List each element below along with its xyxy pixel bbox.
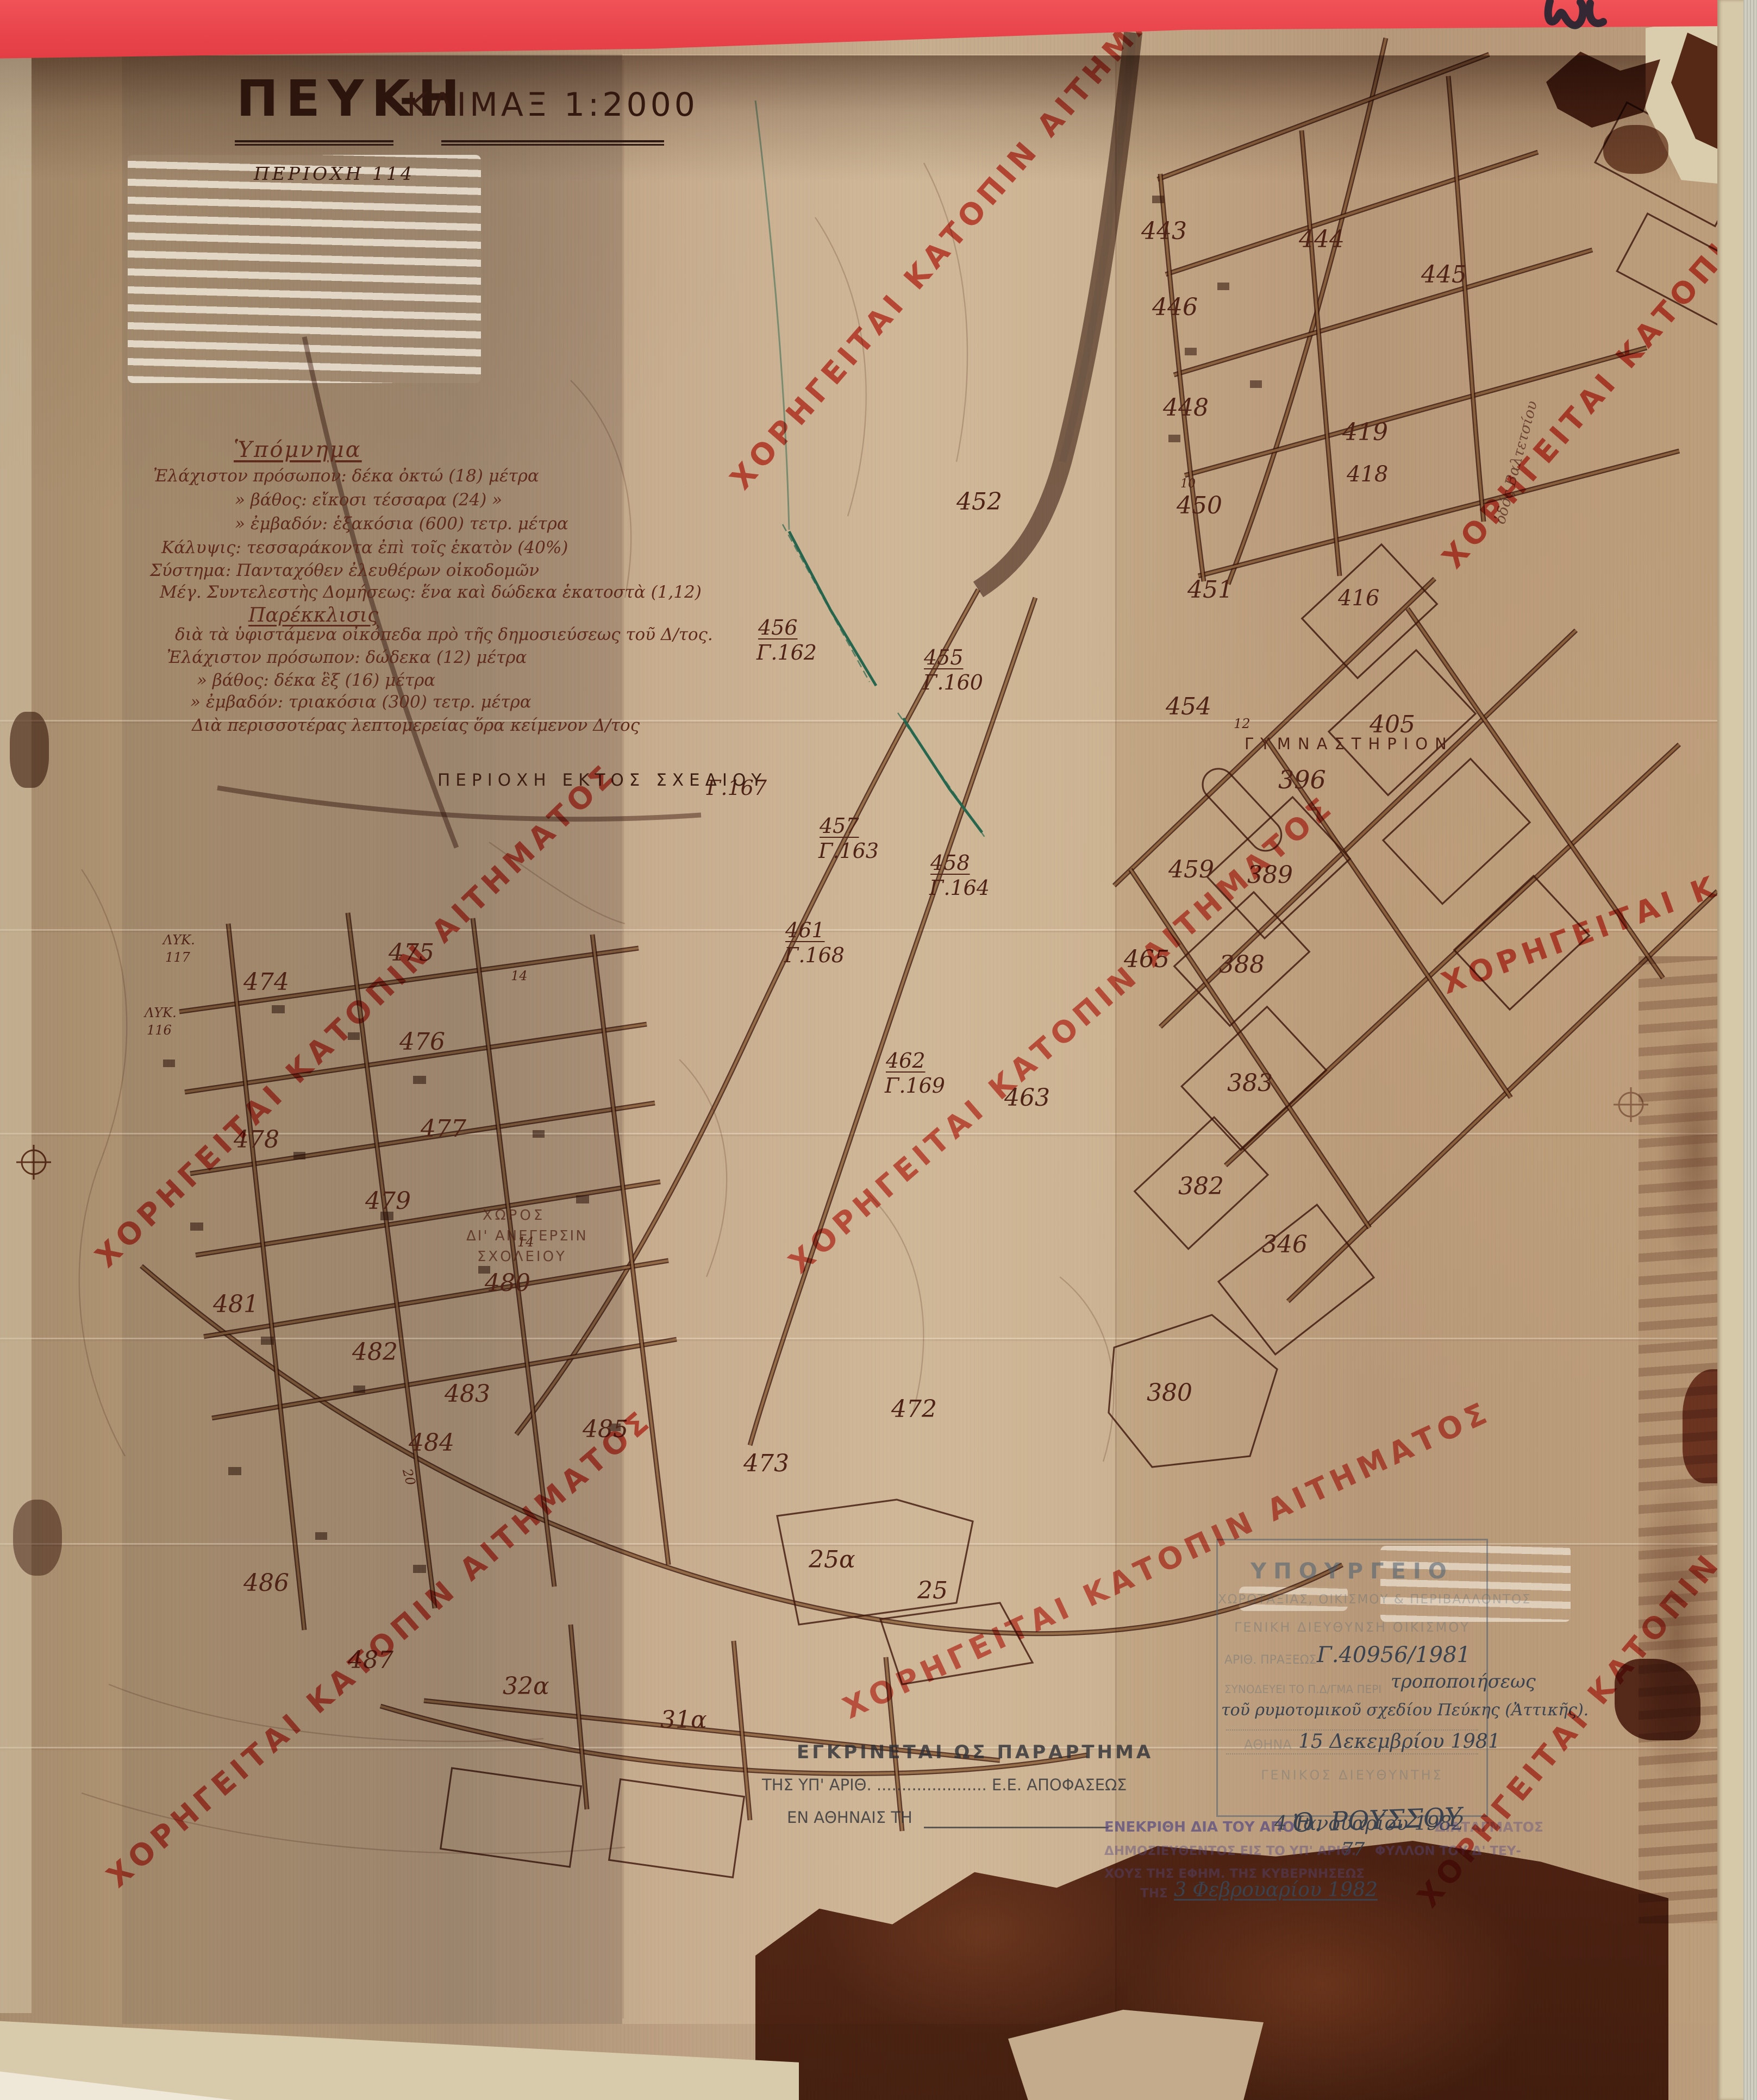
block-label: Γ.164 [929,876,990,900]
block-label: 459 [1168,856,1214,883]
gazette-row4-print: ΤΗΣ [1140,1886,1168,1901]
stamp-subject-2: τοῦ ρυμοτομικοῦ σχεδίου Πεύκης (Ἀττικῆς)… [1221,1701,1589,1720]
legend-line: Διὰ περισσοτέρας λεπτομερείας ὅρα κείμεν… [192,716,640,735]
block-label: Γ.163 [818,839,879,863]
legend-line: Παρέκκλισις [248,604,378,626]
block-label: 14 [517,1234,534,1250]
block-label: 457 [820,814,859,838]
edge-tear [10,712,49,788]
block-label: 482 [352,1338,398,1366]
block-label: 455 [924,645,964,669]
block-label: 116 [147,1023,172,1038]
block-label: ΣΧΟΛΕΙΟΥ [477,1249,567,1265]
legend-line: » ἐμβαδόν: ἑξακόσια (600) τετρ. μέτρα [235,514,568,534]
area-number: ΠΕΡΙΟΧΗ 114 [254,163,415,184]
block-label: 446 [1152,293,1198,321]
block-label: Γ.160 [923,670,983,694]
block-label: 476 [399,1028,445,1056]
block-label: 461 [785,918,825,942]
title-underline [235,140,393,146]
block-label: 416 [1338,586,1379,611]
block-label: ΛΥΚ. [145,1005,177,1020]
block-label: 25 [917,1577,948,1604]
block-label: 480 [485,1269,530,1297]
scanned-cadastral-map-sheet: 4434444454464484194184164504514524544054… [0,0,1757,2100]
block-label: 452 [956,488,1002,516]
block-label: 12 [1234,716,1250,731]
block-label: 443 [1141,217,1187,245]
block-label: 451 [1187,576,1233,604]
block-label: 32α [503,1672,549,1700]
stamp-ministry-line3: ΓΕΝΙΚΗ ΔΙΕΥΘΥΝΣΗ ΟΙΚΙΣΜΟΥ [1218,1620,1486,1635]
block-label: 14 [511,968,528,983]
block-label: Γ.169 [885,1074,945,1098]
block-label: 462 [886,1049,926,1073]
stamp-praxis-label: ΑΡΙΘ. ΠΡΑΞΕΩΣ [1224,1653,1316,1667]
edge-tear [13,1500,62,1576]
block-label: 380 [1147,1379,1192,1407]
legend-line: Ἐλάχιστον πρόσωπον: δέκα ὀκτώ (18) μέτρα [153,466,539,486]
block-label: 456 [758,616,798,640]
block-label: 484 [409,1429,454,1457]
legend-line: » ἐμβαδόν: τριακόσια (300) τετρ. μέτρα [190,692,532,712]
block-label: 454 [1166,693,1211,720]
block-label: 481 [213,1290,259,1318]
scale-underline [441,140,664,146]
block-label: 383 [1227,1069,1273,1097]
sheet-scale: ΚΛΙΜΑΞ 1:2000 [407,86,698,124]
block-label: 346 [1262,1231,1308,1258]
gazette-row2-ink: 77 [1341,1839,1365,1860]
block-label: Γ.168 [784,943,845,967]
block-label: 117 [165,950,190,965]
stamp-date: 15 Δεκεμβρίου 1981 [1298,1731,1500,1753]
legend-heading: Ὑπόμνημα [234,437,362,462]
legend-line: διὰ τὰ ὑφιστάμενα οἰκόπεδα πρὸ τῆς δημοσ… [175,625,713,644]
block-label: 25α [809,1546,855,1574]
gazette-row1-print: ΕΝΕΚΡΙΘΗ ΔΙΑ ΤΟΥ ΑΠΟ [1104,1819,1295,1835]
block-label: 382 [1178,1173,1224,1200]
stamp-ministry-title: ΥΠΟΥΡΓΕΙΟ [1218,1559,1486,1584]
legend-line: Ἐλάχιστον πρόσωπον: δώδεκα (12) μέτρα [167,648,527,667]
block-label: 474 [243,968,289,996]
approval-date-line [924,1827,1109,1828]
legend-line: » βάθος: εἴκοσι τέσσαρα (24) » [235,490,502,510]
block-label: 473 [743,1450,789,1477]
legend-line: Κάλυψις: τεσσαράκοντα ἐπὶ τοῖς ἑκατὸν (4… [161,538,568,557]
block-label: 31α [660,1706,707,1734]
block-label: 444 [1299,225,1345,253]
block-label: 388 [1219,951,1265,979]
block-label: 418 [1347,462,1388,487]
block-label: 479 [365,1187,411,1215]
stamp-ministry-line2: ΧΩΡΟΤΑΞΙΑΣ, ΟΙΚΙΣΜΟΥ & ΠΕΡΙΒΑΛΛΟΝΤΟΣ [1218,1593,1486,1607]
stamp-subject-1: τροποποιήσεως [1391,1671,1536,1692]
block-label: 445 [1421,261,1467,289]
ministry-stamp: ΥΠΟΥΡΓΕΙΟ ΧΩΡΟΤΑΞΙΑΣ, ΟΙΚΙΣΜΟΥ & ΠΕΡΙΒΑΛ… [1216,1539,1488,1817]
stamp-director-label: ΓΕΝΙΚΟΣ ΔΙΕΥΘΥΝΤΗΣ [1218,1767,1486,1783]
block-label: 477 [421,1115,466,1143]
approval-line3: ΕΝ ΑΘΗΝΑΙΣ ΤΗ [787,1808,912,1827]
torn-dark-piece [1603,125,1668,174]
handwritten-mark-icon [0,0,1757,65]
block-label: 419 [1342,418,1388,446]
stamp-accompanies-label: ΣΥΝΟΔΕΥΕΙ ΤΟ Π.Δ/ΓΜΑ ΠΕΡΙ [1224,1683,1381,1696]
stamp-rule [1226,1753,1478,1754]
gazette-row4-ink: 3 Φεβρουαρίου 1982 [1174,1879,1378,1901]
block-label: 450 [1177,492,1222,519]
gazette-row2-print: ΔΗΜΟΣΙΕΥΘΕΝΤΟΣ ΕΙΣ ΤΟ ΥΠ' ΑΡΙΘ. [1104,1844,1356,1858]
block-label: ΛΥΚ. [163,932,195,948]
block-label: 10 [1180,477,1196,491]
stamp-city-label: ΑΘΗΝΑ [1244,1737,1292,1752]
block-label: 472 [891,1395,937,1423]
legend-line: » βάθος: δέκα ἓξ (16) μέτρα [197,670,435,690]
block-label: ΓΥΜΝΑΣΤΗΡΙΟΝ [1245,735,1454,753]
block-label: 483 [445,1380,490,1408]
block-label: 448 [1163,394,1209,422]
approval-line2: ΤΗΣ ΥΠ' ΑΡΙΘ. ...................... Ε.Ε… [762,1776,1127,1794]
legend-line: Σύστημα: Πανταχόθεν ἐλευθέρων οἰκοδομῶν [150,561,539,580]
backing-strip-right [1717,0,1745,2100]
terrain-contours [79,163,1114,1853]
legend-line: Μέγ. Συντελεστὴς Δομήσεως: ἕνα καὶ δώδεκ… [160,582,702,602]
block-label: Γ.162 [756,641,817,665]
scanner-edge-right [1743,0,1757,2100]
stamp-praxis-number: Γ.40956/1981 [1317,1643,1471,1668]
block-label: 458 [930,851,970,875]
building-footprints [163,196,1262,1573]
approval-line1: ΕΓΚΡΙΝΕΤΑΙ ΩΣ ΠΑΡΑΡΤΗΜΑ [797,1741,1153,1763]
block-label: ΧΩΡΟΣ [483,1207,545,1224]
block-label: 486 [243,1569,289,1597]
